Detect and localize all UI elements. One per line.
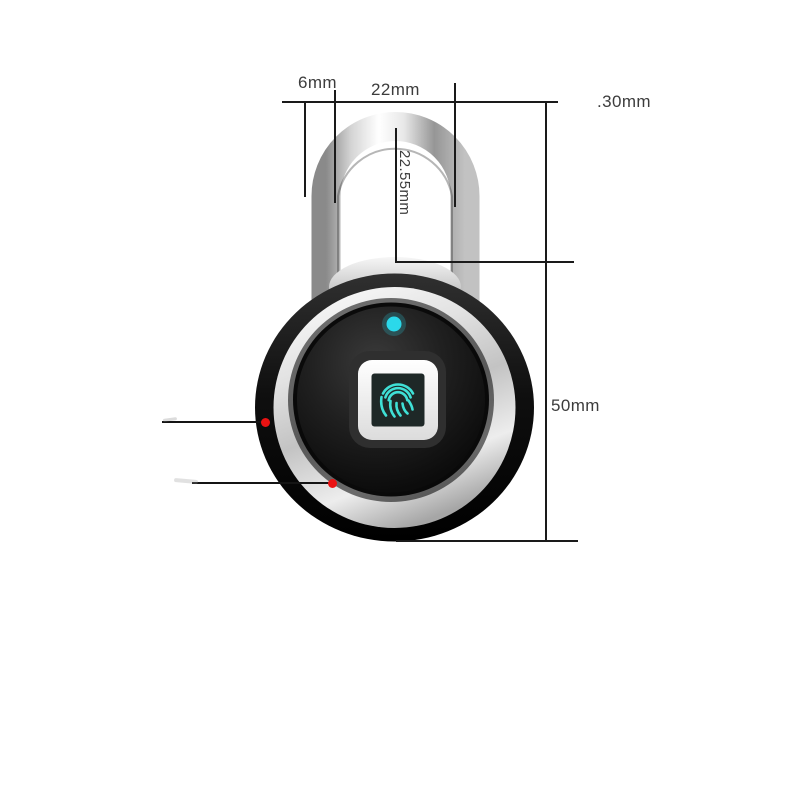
sensor-screen xyxy=(372,374,425,427)
led-indicator xyxy=(387,317,402,332)
red-marker-dot-face xyxy=(328,479,337,488)
padlock-illustration xyxy=(0,0,800,800)
label-shackle-inner-width: 22mm xyxy=(371,81,420,98)
dim-line-height-vertical xyxy=(545,102,547,542)
marker-leader-line-upper xyxy=(162,421,266,423)
dim-line-body-bottom xyxy=(396,540,578,542)
dim-tick-thickness-right xyxy=(334,90,336,203)
marker-leader-line-lower xyxy=(192,482,333,484)
dim-line-top-horizontal xyxy=(282,101,558,103)
dim-tick-thickness-left xyxy=(304,102,306,197)
label-shackle-diameter: .30mm xyxy=(597,93,651,110)
label-shackle-thickness: 6mm xyxy=(298,74,337,91)
dim-tick-inner-width-right xyxy=(454,83,456,207)
label-shackle-inner-height: 22.55mm xyxy=(397,150,412,215)
product-dimension-diagram: 6mm 22mm .30mm 22.55mm 50mm xyxy=(0,0,800,800)
label-body-height: 50mm xyxy=(551,397,600,414)
red-marker-dot-rim xyxy=(261,418,270,427)
dim-line-body-top xyxy=(396,261,574,263)
